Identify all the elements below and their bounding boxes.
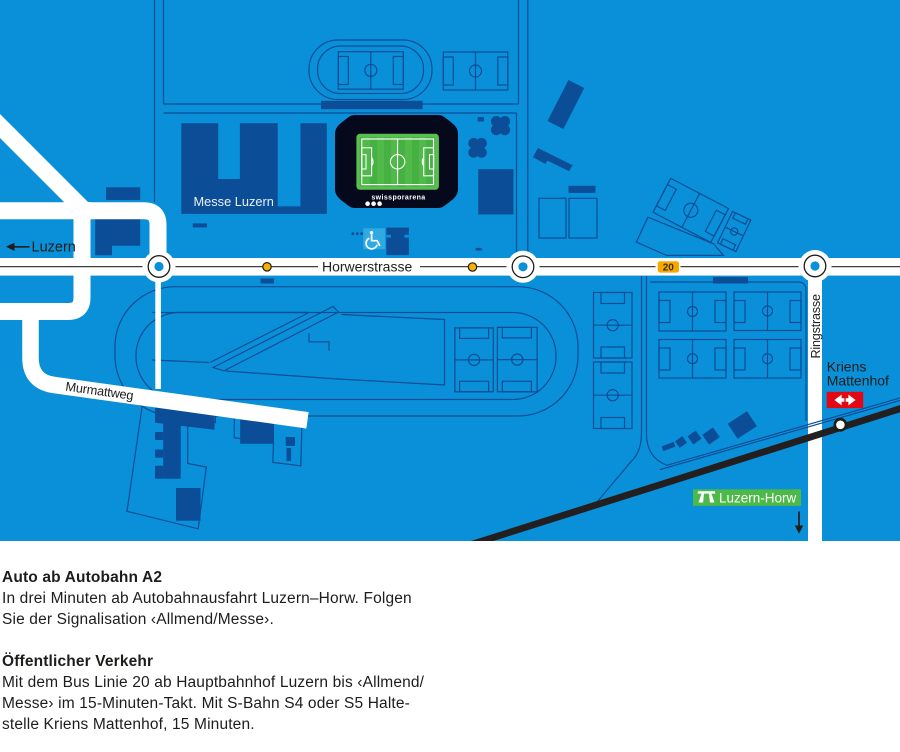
svg-text:20: 20 xyxy=(663,263,675,274)
svg-text:Messe Luzern: Messe Luzern xyxy=(194,194,274,209)
svg-text:Luzern-Horw: Luzern-Horw xyxy=(719,490,797,505)
svg-text:swissporarena: swissporarena xyxy=(371,195,425,202)
svg-text:Horwerstrasse: Horwerstrasse xyxy=(322,258,412,274)
svg-text:Mattenhof: Mattenhof xyxy=(827,373,889,389)
svg-text:Luzern: Luzern xyxy=(32,240,76,256)
svg-text:Ringstrasse: Ringstrasse xyxy=(809,294,823,358)
